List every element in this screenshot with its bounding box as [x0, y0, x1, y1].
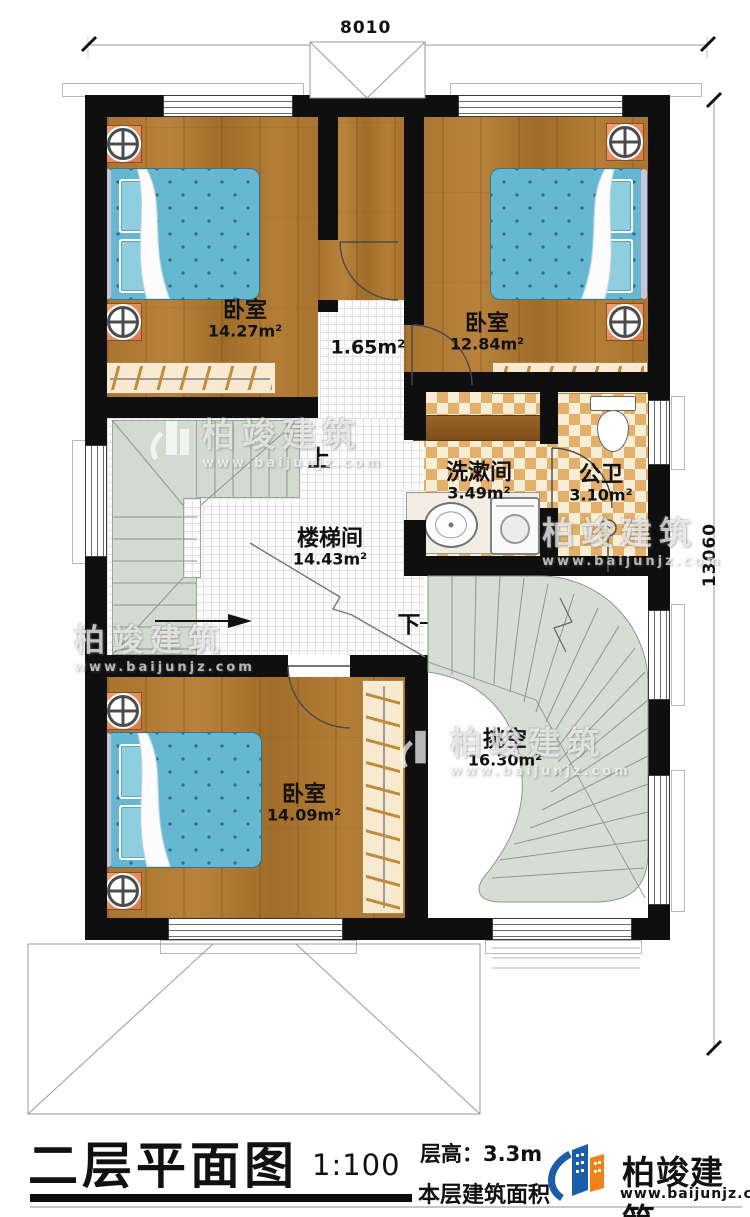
sink — [424, 502, 478, 548]
wall — [405, 677, 428, 918]
dimension-top: 8010 — [340, 18, 391, 38]
lamp-icon — [609, 126, 641, 158]
window — [648, 610, 670, 700]
wall — [318, 300, 338, 312]
brand-logo-icon — [540, 1138, 620, 1206]
wall — [540, 508, 558, 558]
duvet-fold — [105, 733, 261, 867]
wall — [85, 397, 318, 418]
title-underline — [30, 1194, 412, 1202]
wall — [404, 95, 424, 325]
room-label-hall: 1.65m² — [331, 338, 406, 359]
room-label-bedroom-tl: 卧室 14.27m² — [208, 300, 282, 341]
watermark-logo-icon — [22, 622, 66, 668]
nightstand — [104, 125, 142, 163]
nightstand — [606, 303, 644, 341]
wall — [318, 95, 338, 240]
lamp-icon — [107, 875, 139, 907]
wardrobe — [104, 362, 276, 394]
window — [458, 95, 623, 117]
room-label-toilet: 公卫 3.10m² — [569, 464, 632, 505]
floor-area-label: 本层建筑面积 — [418, 1177, 550, 1209]
nightstand — [104, 692, 142, 730]
plan-title: 二层平面图 — [28, 1126, 298, 1198]
window — [163, 95, 293, 117]
washing-machine — [490, 497, 540, 555]
wall — [404, 520, 426, 558]
wall — [404, 372, 670, 392]
room-label-bedroom-tr: 卧室 12.84m² — [450, 313, 524, 354]
duvet-fold — [491, 169, 647, 299]
floor-height-label: 层高：3.3m — [420, 1138, 542, 1168]
nightstand — [104, 303, 142, 341]
stair-flight-up — [196, 420, 300, 498]
window — [648, 400, 670, 465]
bathroom-shelf — [413, 415, 542, 441]
stair-well-opening — [183, 498, 201, 578]
window — [492, 918, 632, 940]
bed — [104, 168, 260, 300]
duvet-fold — [105, 169, 259, 299]
plan-scale: 1:100 — [312, 1148, 401, 1182]
dimension-right: 13060 — [700, 523, 720, 587]
window — [648, 775, 670, 905]
wardrobe — [362, 680, 404, 914]
brand-site: www.baijunjz.com — [620, 1186, 750, 1202]
nightstand — [104, 872, 142, 910]
window-sill — [485, 940, 642, 954]
room-label-washroom: 洗漱间 3.49m² — [446, 462, 512, 503]
bed — [104, 732, 262, 868]
nightstand — [606, 123, 644, 161]
window — [168, 918, 343, 940]
floor-plan-page: 8010 13060 卧室 14.27m² 卧室 12.84m² 1.65m² … — [0, 0, 750, 1217]
wall — [404, 556, 670, 576]
room-label-stairwell: 楼梯间 14.43m² — [293, 528, 367, 569]
lamp-icon — [107, 306, 139, 338]
lamp-icon — [609, 306, 641, 338]
window-sill — [671, 604, 685, 706]
bed — [490, 168, 648, 300]
window-sill — [671, 396, 685, 470]
lamp-icon — [107, 128, 139, 160]
toilet-tank — [590, 396, 636, 411]
window-sill — [671, 770, 685, 912]
stair-down-label: 下 — [398, 605, 421, 639]
lamp-icon — [107, 695, 139, 727]
room-label-void: 挑空 16.30m² — [468, 729, 542, 770]
wall — [85, 655, 288, 677]
room-label-bedroom-b: 卧室 14.09m² — [267, 784, 341, 825]
stair-up-label: 上 — [308, 439, 331, 473]
wall — [404, 392, 426, 440]
window-sill — [160, 940, 357, 954]
wall — [540, 392, 558, 444]
brand-name: 柏竣建筑 — [622, 1146, 750, 1217]
window-sill — [72, 440, 86, 564]
window — [85, 445, 107, 557]
wall — [350, 655, 428, 677]
